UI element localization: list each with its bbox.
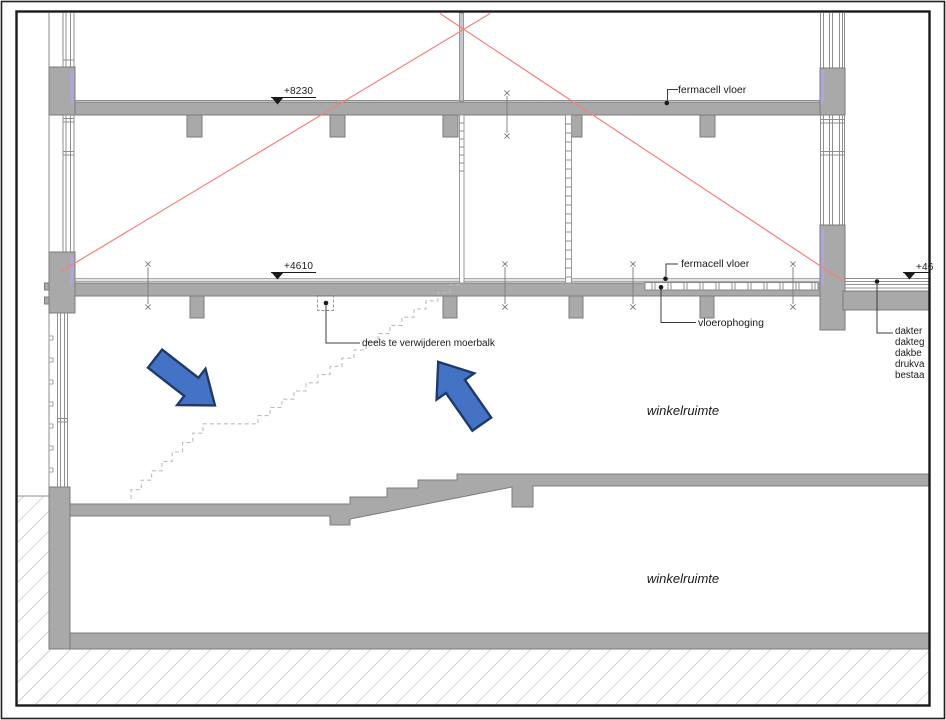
moerbalk-note-label: deels te verwijderen moerbalk [362,338,495,350]
insulation-strip [71,255,75,283]
roof-note-line: drukva [895,360,929,371]
insulation-strip [821,70,825,103]
fermacell-label-upper: fermacell vloer [678,84,746,96]
left-wall [45,13,76,487]
insulation-strip [71,69,75,103]
storey-post-left [460,115,465,283]
roof-buildup-notes: dakter dakteg dakbe drukva bestaa [895,327,929,382]
fermacell-label-lower: fermacell vloer [681,258,749,270]
drawing-frame [17,12,930,706]
floor-slab-4610 [67,279,843,296]
left-foundation-wall [49,487,70,649]
vloerophoging-label: vloerophoging [698,317,764,329]
room-label-first-floor: winkelruimte [647,405,719,417]
arrow-up-left [419,349,500,438]
level-label-4610: +4610 [284,261,313,273]
right-wall [820,13,845,330]
level-label-terrace: +46 [916,262,934,274]
red-cross-lines [60,14,843,282]
floor-slab-8230 [67,101,822,116]
beams-under-8230 [187,115,715,137]
insulation-strip [821,228,825,285]
section-linework [0,0,946,720]
roof-terrace [843,279,930,311]
architectural-section-drawing: +8230 +4610 +46 fermacell vloer fermacel… [0,0,946,720]
beams-under-4610 [190,296,714,318]
leader-moerbalk [318,296,361,344]
ground-floor-slab-with-steps [70,474,930,525]
measure-marks [145,90,795,309]
room-label-ground-floor: winkelruimte [647,573,719,585]
basement-floor-slab [49,633,930,649]
storey-post-right [566,115,572,283]
level-label-8230: +8230 [284,86,313,98]
roof-note-line: bestaa [895,371,929,382]
arrow-down-right [141,340,229,423]
ground-hatch [18,496,930,705]
